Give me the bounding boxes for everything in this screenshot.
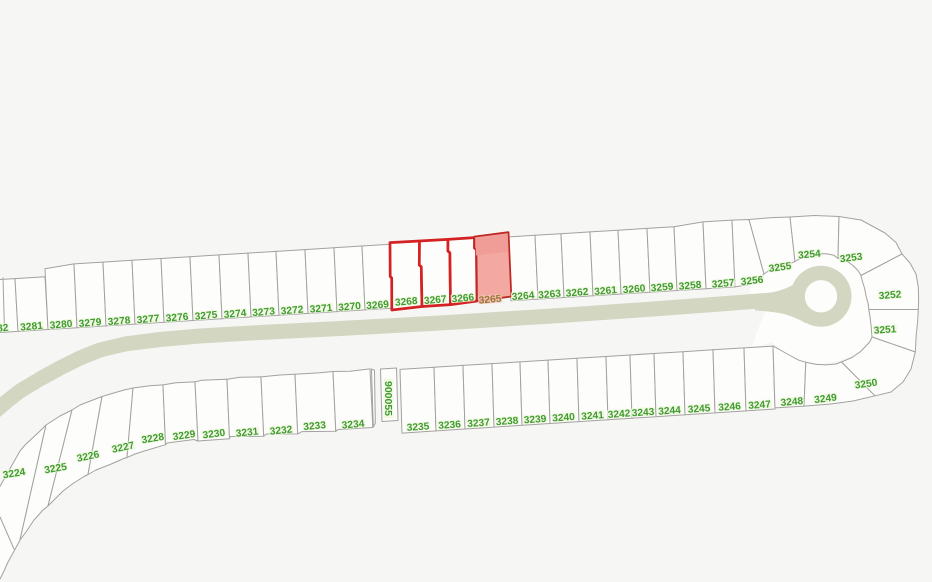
svg-text:3267: 3267 (424, 294, 448, 307)
svg-text:3235: 3235 (406, 421, 430, 434)
svg-text:3274: 3274 (223, 308, 247, 321)
svg-text:3268: 3268 (395, 296, 419, 309)
svg-text:3248: 3248 (780, 396, 804, 409)
svg-text:3281: 3281 (20, 321, 44, 334)
svg-text:3254: 3254 (798, 249, 822, 262)
svg-text:3262: 3262 (565, 287, 589, 300)
svg-text:3276: 3276 (165, 312, 189, 325)
svg-text:3282: 3282 (0, 323, 9, 336)
svg-text:3246: 3246 (718, 401, 742, 414)
svg-text:3270: 3270 (338, 301, 362, 314)
svg-text:3264: 3264 (511, 290, 535, 303)
svg-text:3251: 3251 (873, 324, 897, 337)
svg-text:3277: 3277 (136, 313, 160, 326)
svg-text:3242: 3242 (607, 408, 631, 421)
svg-text:3244: 3244 (658, 405, 682, 418)
svg-text:3258: 3258 (678, 280, 702, 293)
svg-text:3252: 3252 (878, 289, 902, 302)
svg-text:3234: 3234 (341, 419, 365, 432)
svg-text:3236: 3236 (438, 419, 462, 432)
svg-text:3280: 3280 (49, 319, 73, 332)
svg-text:3279: 3279 (78, 317, 102, 330)
svg-text:3278: 3278 (107, 315, 131, 328)
svg-text:3265: 3265 (478, 294, 502, 307)
svg-text:3239: 3239 (523, 414, 547, 427)
svg-text:3238: 3238 (495, 416, 519, 429)
svg-text:3269: 3269 (366, 299, 390, 312)
svg-text:3273: 3273 (252, 306, 276, 319)
svg-text:3271: 3271 (309, 303, 333, 316)
svg-text:3257: 3257 (711, 278, 735, 291)
svg-text:3261: 3261 (594, 285, 618, 298)
svg-text:3259: 3259 (650, 282, 674, 295)
svg-text:3243: 3243 (631, 407, 655, 420)
svg-text:3241: 3241 (581, 410, 605, 423)
svg-text:3240: 3240 (552, 412, 576, 425)
svg-text:3272: 3272 (280, 305, 304, 318)
svg-text:3266: 3266 (451, 292, 475, 305)
svg-text:900055: 900055 (382, 381, 394, 416)
svg-text:3275: 3275 (194, 310, 218, 323)
svg-text:3237: 3237 (467, 417, 491, 430)
svg-text:3263: 3263 (538, 289, 562, 302)
svg-text:3260: 3260 (622, 283, 646, 296)
svg-text:3245: 3245 (687, 403, 711, 416)
svg-text:3233: 3233 (303, 420, 327, 433)
svg-text:3247: 3247 (748, 399, 772, 412)
